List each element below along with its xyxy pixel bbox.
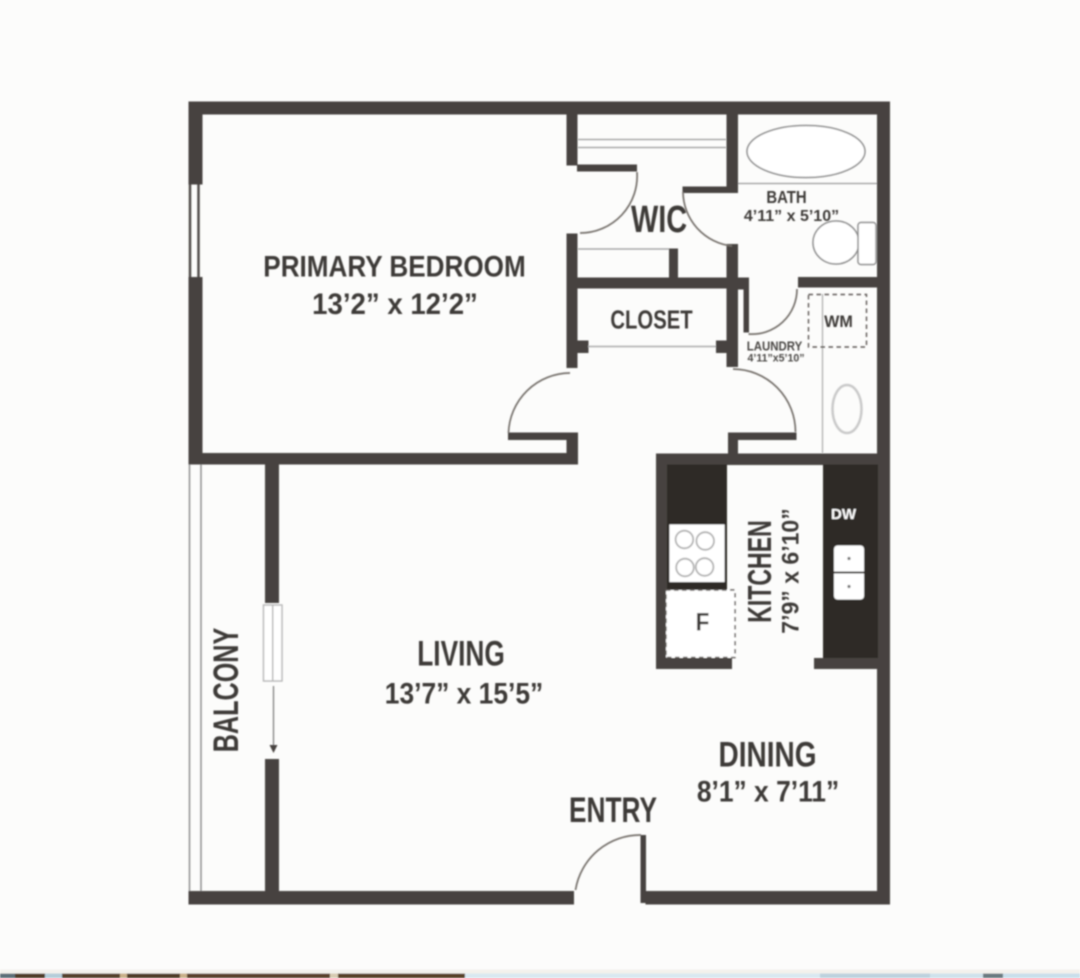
svg-text:PRIMARY BEDROOM: PRIMARY BEDROOM <box>263 250 525 283</box>
svg-text:CLOSET: CLOSET <box>610 305 692 334</box>
svg-text:WIC: WIC <box>631 198 687 241</box>
svg-text:8’1” x 7’11”: 8’1” x 7’11” <box>697 774 839 808</box>
svg-text:BALCONY: BALCONY <box>207 628 246 753</box>
svg-text:KITCHEN: KITCHEN <box>742 520 779 623</box>
svg-text:13’2” x 12’2”: 13’2” x 12’2” <box>312 288 478 321</box>
svg-text:ENTRY: ENTRY <box>569 790 657 830</box>
svg-text:4’11”x5’10”: 4’11”x5’10” <box>748 352 805 364</box>
svg-text:WM: WM <box>824 312 853 331</box>
svg-text:DW: DW <box>831 506 857 523</box>
svg-text:F: F <box>696 608 710 636</box>
svg-text:LIVING: LIVING <box>417 634 504 674</box>
svg-text:7’9” x 6’10”: 7’9” x 6’10” <box>777 508 804 633</box>
svg-text:BATH: BATH <box>766 188 806 207</box>
svg-text:13’7” x 15’5”: 13’7” x 15’5” <box>385 676 543 710</box>
svg-text:DINING: DINING <box>719 735 817 775</box>
svg-text:4’11” x 5’10”: 4’11” x 5’10” <box>744 208 839 225</box>
